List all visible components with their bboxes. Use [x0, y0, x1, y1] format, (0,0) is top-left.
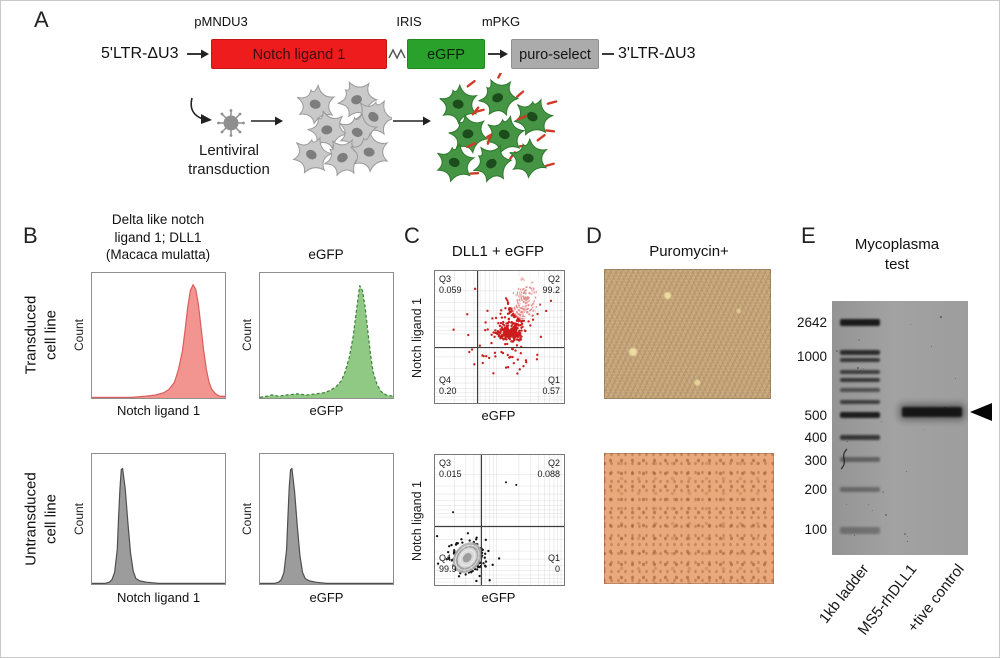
- arrow-icon: [251, 115, 283, 127]
- ladder-size-label: 100: [771, 521, 827, 539]
- x-axis-label: eGFP: [438, 408, 559, 423]
- count-axis-label: Count: [240, 319, 254, 351]
- gel-speckle: [910, 324, 911, 325]
- quadrant-stat: Q299.2: [542, 274, 560, 296]
- panel-e-title: Mycoplasma test: [837, 235, 957, 276]
- gel-speckle: [854, 535, 855, 536]
- ladder-size-label: 500: [771, 407, 827, 425]
- scatter-transduced: Q30.059 Q299.2 Q40.20 Q10.57: [434, 270, 565, 404]
- x-axis-label: eGFP: [438, 590, 559, 605]
- connector-line: [602, 53, 614, 55]
- untransduced-cells-illustration: [284, 81, 392, 187]
- ladder-band: [840, 435, 880, 440]
- ladder-size-label: 200: [771, 481, 827, 499]
- ladder-band: [840, 319, 880, 326]
- band-arrowhead-icon: [970, 403, 992, 421]
- row-label-untransduced: Untransduced cell line: [22, 472, 61, 565]
- positive-control-band: [902, 407, 962, 417]
- gel-speckle: [863, 368, 864, 369]
- gel-speckle: [872, 510, 873, 511]
- arrow-icon: [393, 115, 431, 127]
- micrograph-confluent-cells: [604, 269, 771, 399]
- ladder-band: [840, 412, 880, 418]
- gel-speckle: [846, 504, 847, 505]
- gel-speckle: [846, 404, 847, 405]
- selector-cassette-box: puro-select: [511, 39, 599, 69]
- scatter-untransduced: Q30.015 Q20.088 Q499.9 Q10: [434, 454, 565, 586]
- gel-speckle: [940, 316, 942, 318]
- ladder-band: [840, 457, 880, 462]
- x-axis-label: eGFP: [266, 590, 387, 605]
- ladder-band: [840, 388, 880, 392]
- gene-cassette-box: Notch ligand 1: [211, 39, 387, 69]
- micrograph-sparse-cells: [604, 453, 774, 584]
- quadrant-stat: Q10: [548, 553, 560, 575]
- gel-speckle: [931, 346, 932, 347]
- gel-speckle: [857, 367, 859, 369]
- x-axis-label: Notch ligand 1: [98, 403, 219, 418]
- gel-speckle: [924, 429, 925, 430]
- ladder-size-label: 400: [771, 429, 827, 447]
- ladder-size-label: 2642: [771, 314, 827, 332]
- quadrant-stat: Q499.9: [439, 553, 457, 575]
- histogram-transduced-dll1: [91, 272, 226, 399]
- gel-speckle: [847, 441, 848, 442]
- transduced-cells-illustration: [431, 73, 563, 195]
- histogram-untransduced-dll1: [91, 453, 226, 585]
- row-label-transduced: Transduced cell line: [22, 296, 61, 375]
- gel-speckle: [906, 471, 907, 472]
- curved-arrow-icon: [187, 96, 215, 124]
- gel-speckle: [955, 378, 956, 379]
- ladder-band: [840, 487, 880, 492]
- quadrant-stat: Q10.57: [542, 375, 560, 397]
- panel-c-title: DLL1 + eGFP: [428, 243, 568, 260]
- transduction-caption: Lentiviral transduction: [154, 142, 304, 180]
- panel-c-letter: C: [404, 223, 420, 249]
- quadrant-stat: Q30.015: [439, 458, 462, 480]
- promoter-label: pMNDU3: [176, 14, 266, 29]
- histogram-transduced-egfp: [259, 272, 394, 399]
- gel-speckle: [904, 533, 906, 535]
- gel-speckle: [941, 409, 943, 411]
- panel-b-col1-title: Delta like notch ligand 1; DLL1 (Macaca …: [78, 211, 238, 264]
- y-axis-label: Notch ligand 1: [410, 298, 424, 378]
- ladder-band: [840, 350, 880, 355]
- gel-speckle: [907, 536, 908, 537]
- panel-b-letter: B: [23, 223, 38, 249]
- y-axis-label: Notch ligand 1: [410, 481, 424, 561]
- panel-d-letter: D: [586, 223, 602, 249]
- gel-speckle: [882, 491, 884, 493]
- gel-speckle: [885, 514, 887, 516]
- ladder-band: [840, 527, 880, 534]
- panel-a-letter: A: [34, 7, 49, 33]
- ladder-band: [840, 358, 880, 362]
- reporter-cassette-box: eGFP: [407, 39, 485, 69]
- figure-canvas: A pMNDU3 IRIS mPKG 5'LTR-ΔU3 Notch ligan…: [0, 0, 1000, 658]
- ladder-band: [840, 370, 880, 374]
- arrow-icon: [488, 48, 508, 60]
- panel-d-title: Puromycin+: [609, 243, 769, 260]
- gel-speckle: [871, 321, 872, 322]
- virus-icon: [216, 108, 246, 138]
- gel-speckle: [881, 421, 882, 422]
- gel-speckle: [907, 541, 908, 542]
- quadrant-stat: Q20.088: [537, 458, 560, 480]
- gel-speckle: [944, 407, 946, 409]
- gel-speckle: [938, 412, 939, 413]
- count-axis-label: Count: [240, 503, 254, 535]
- count-axis-label: Count: [72, 319, 86, 351]
- ladder-size-label: 300: [771, 452, 827, 470]
- gel-speckle: [836, 350, 838, 352]
- x-axis-label: eGFP: [266, 403, 387, 418]
- mpkg-label: mPKG: [456, 14, 546, 29]
- left-ltr-label: 5'LTR-ΔU3: [101, 39, 178, 69]
- x-axis-label: Notch ligand 1: [98, 590, 219, 605]
- right-ltr-label: 3'LTR-ΔU3: [618, 39, 695, 69]
- panel-b-col2-title: eGFP: [266, 246, 386, 264]
- gel-speckle: [858, 339, 860, 341]
- iris-label: IRIS: [364, 14, 454, 29]
- ladder-size-label: 1000: [771, 348, 827, 366]
- quadrant-stat: Q40.20: [439, 375, 457, 397]
- arrow-icon: [187, 48, 209, 60]
- ladder-band: [840, 378, 880, 382]
- quadrant-stat: Q30.059: [439, 274, 462, 296]
- histogram-untransduced-egfp: [259, 453, 394, 585]
- gel-image: [832, 301, 968, 555]
- count-axis-label: Count: [72, 503, 86, 535]
- panel-e-letter: E: [801, 223, 816, 249]
- zigzag-icon: [388, 47, 406, 61]
- gel-speckle: [868, 504, 869, 505]
